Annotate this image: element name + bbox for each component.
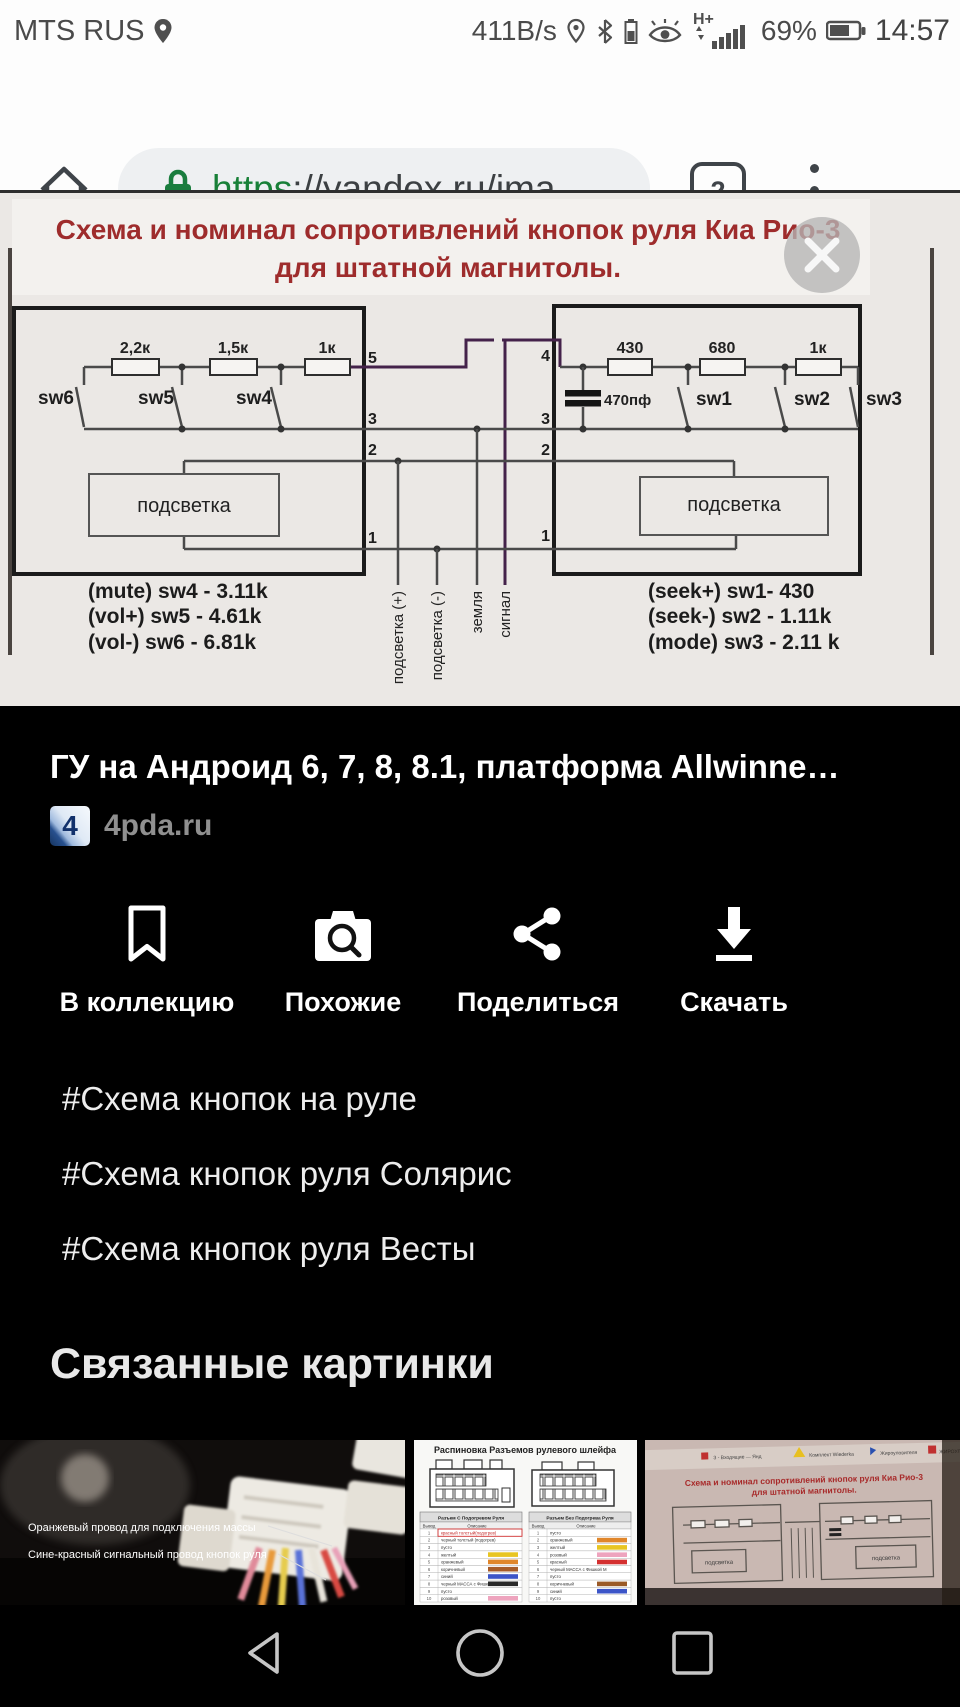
col-header: Описание (467, 1523, 487, 1528)
left-resistor-chain: 2,2к 1,5к 1к sw6 sw5 sw4 (38, 340, 350, 427)
status-bar: MTS RUS 411B/s (0, 0, 960, 62)
blurred-knob (61, 1454, 109, 1502)
phone-screen: MTS RUS 411B/s (0, 0, 960, 1707)
switch-label: sw3 (866, 389, 902, 410)
resistor-label: 1,5к (218, 340, 249, 357)
value-line: (mute) sw4 - 3.11k (88, 580, 268, 603)
table-header: Разъем Без Подогрева Руля (546, 1516, 614, 1522)
pin-label: 2 (368, 442, 377, 459)
svg-text:пусто: пусто (441, 1545, 452, 1550)
camera-search-icon (312, 903, 374, 965)
table-header: Разъем С Подогревом Руля (438, 1516, 504, 1522)
value-line: (vol+) sw5 - 4.61k (88, 605, 262, 628)
share-button[interactable]: Поделиться (443, 903, 633, 1018)
pin-label: 3 (541, 411, 550, 428)
backlight-label-left: подсветка (137, 495, 231, 517)
similar-images-button[interactable]: Похожие (248, 903, 438, 1018)
thumb1-label1: Оранжевый провод для подключения массы (28, 1522, 256, 1534)
svg-text:желтый: желтый (441, 1552, 457, 1557)
svg-text:пусто: пусто (441, 1589, 452, 1594)
wire-name-labels: подсветка (+) подсветка (-) земля сигнал (390, 591, 514, 684)
svg-text:оранжевый: оранжевый (441, 1560, 464, 1565)
strip-snippet: Комплект Wiederka (809, 1452, 854, 1459)
favicon-letter: 4 (62, 810, 78, 842)
backlight-label-right: подсветка (687, 494, 781, 516)
battery-icon (826, 19, 866, 43)
source-row[interactable]: 4 4pda.ru (50, 806, 212, 846)
svg-text:пусто: пусто (550, 1596, 561, 1601)
thumb1-label2: Сине-красный сигнальный провод кнопок ру… (28, 1549, 267, 1561)
eye-comfort-icon (647, 18, 683, 45)
svg-text:красный: красный (550, 1560, 567, 1565)
svg-text:Описание: Описание (576, 1523, 596, 1528)
svg-text:розовый: розовый (550, 1552, 567, 1557)
svg-text:желтый: желтый (550, 1545, 566, 1550)
related-thumb-schematic-photo[interactable]: З - Входящие — Янд Комплект Wiederka Жир… (645, 1440, 960, 1605)
signal-wire (350, 340, 560, 367)
strip-snippet: З - Входящие — Янд (713, 1454, 761, 1461)
resistor-label: 430 (617, 340, 644, 357)
col-header: Вывод (423, 1523, 436, 1528)
left-connector-box (14, 308, 364, 574)
wire-break-artifact (494, 332, 502, 348)
thumb2-title: Распиновка Разъемов рулевого шлейфа (434, 1445, 617, 1455)
value-line: (seek+) sw1- 430 (648, 580, 814, 603)
action-label: Скачать (680, 987, 788, 1018)
bt-battery-icon (624, 18, 638, 45)
svg-text:Вывод: Вывод (532, 1523, 545, 1528)
switch-label: sw4 (236, 388, 272, 409)
value-texts: (mute) sw4 - 3.11k (vol+) sw5 - 4.61k (v… (88, 580, 840, 654)
wire-label-ground: земля (469, 591, 486, 633)
carrier-label: MTS RUS (14, 15, 145, 48)
pinout-table-right: Разъем Без Подогрева Руля Вывод Описание… (529, 1512, 631, 1602)
battery-percent: 69% (761, 15, 817, 47)
hashtag-link[interactable]: #Схема кнопок на руле (62, 1080, 417, 1118)
value-line: (vol-) sw6 - 6.81k (88, 631, 256, 654)
strip-snippet: Жироуловителя (880, 1450, 917, 1457)
mini-backlight-label: подсветка (872, 1555, 901, 1562)
svg-text:коричневый: коричневый (441, 1567, 465, 1572)
nav-home-button[interactable] (454, 1627, 506, 1679)
resistor-label: 1к (810, 340, 828, 357)
svg-text:пусто: пусто (550, 1574, 561, 1579)
carrier-group: MTS RUS (14, 15, 173, 48)
clock: 14:57 (875, 14, 950, 48)
action-label: В коллекцию (60, 987, 235, 1018)
value-line: (mode) sw3 - 2.11 k (648, 631, 840, 654)
net-speed: 411B/s (472, 15, 557, 47)
svg-text:пусто: пусто (550, 1530, 561, 1535)
resistor-label: 2,2к (120, 340, 151, 357)
wire-label-signal: сигнал (497, 591, 514, 638)
capacitor-label: 470пф (604, 392, 651, 409)
site-favicon: 4 (50, 806, 90, 846)
pin-label: 3 (368, 411, 377, 428)
switch-label: sw5 (138, 388, 174, 409)
mini-backlight-label: подсветка (705, 1560, 734, 1567)
pinout-table-left: Разъем С Подогревом Руля Вывод Описание … (420, 1512, 522, 1602)
connector-diagram-a (430, 1460, 514, 1507)
resistor-label: 680 (709, 340, 736, 357)
action-label: Поделиться (457, 987, 619, 1018)
nav-back-button[interactable] (242, 1630, 288, 1676)
svg-text:розовый: розовый (441, 1596, 458, 1601)
related-thumb-wiring-photo[interactable]: Оранжевый провод для подключения массы С… (0, 1440, 405, 1605)
bluetooth-icon (595, 18, 615, 45)
location-icon (566, 18, 586, 44)
viewed-image-schematic[interactable]: Схема и номинал сопротивлений кнопок рул… (0, 193, 960, 706)
schematic-title-line2: для штатной магнитолы. (275, 252, 621, 283)
image-viewer: Схема и номинал сопротивлений кнопок рул… (0, 190, 960, 706)
related-thumb-pinout-doc[interactable]: Распиновка Разъемов рулевого шлейфа (414, 1440, 637, 1605)
action-label: Похожие (285, 987, 401, 1018)
svg-text:10: 10 (536, 1596, 541, 1601)
related-images-heading: Связанные картинки (50, 1340, 494, 1389)
pin-label: 2 (541, 442, 550, 459)
add-to-collection-button[interactable]: В коллекцию (52, 903, 242, 1018)
pin-label: 1 (541, 528, 550, 545)
hashtag-link[interactable]: #Схема кнопок руля Солярис (62, 1155, 512, 1193)
hashtag-link[interactable]: #Схема кнопок руля Весты (62, 1230, 475, 1268)
svg-text:красный толстый(подогрев): красный толстый(подогрев) (441, 1530, 497, 1535)
value-line: (seek-) sw2 - 1.11k (648, 605, 832, 628)
result-title: ГУ на Андроид 6, 7, 8, 8.1, платформа Al… (50, 748, 930, 786)
browser-toolbar: https://yandex.ru/ima 2 (0, 62, 960, 190)
download-icon (706, 903, 762, 965)
download-button[interactable]: Скачать (639, 903, 829, 1018)
nav-recents-button[interactable] (670, 1630, 716, 1676)
location-pin-filled-icon (153, 18, 173, 44)
schematic-title-line1: Схема и номинал сопротивлений кнопок рул… (56, 214, 841, 245)
wire-label-backlight-minus: подсветка (-) (429, 591, 446, 680)
svg-text:черный МАССА с Фишкой М: черный МАССА с Фишкой М (550, 1567, 607, 1572)
svg-text:синий: синий (441, 1574, 453, 1579)
pin-label: 1 (368, 530, 377, 547)
resistor-label: 1к (319, 340, 337, 357)
switch-label: sw6 (38, 388, 74, 409)
pin-label: 5 (368, 350, 377, 367)
svg-text:оранжевый: оранжевый (550, 1538, 573, 1543)
pin-label: 4 (541, 348, 550, 365)
bookmark-icon (119, 903, 175, 965)
signal-strength-icon: H+ (692, 9, 752, 53)
pin-numbers: 5 3 2 1 4 3 2 1 (368, 348, 550, 547)
svg-text:черный толстый (подогрев): черный толстый (подогрев) (441, 1538, 496, 1543)
svg-text:коричневый: коричневый (550, 1582, 574, 1587)
svg-text:10: 10 (427, 1596, 432, 1601)
switch-label: sw2 (794, 389, 830, 410)
svg-text:синий: синий (550, 1589, 562, 1594)
switch-label: sw1 (696, 389, 732, 410)
close-button[interactable] (784, 217, 860, 293)
right-resistor-chain: 430 680 1к sw1 sw2 sw3 (560, 340, 902, 427)
source-name: 4pda.ru (104, 809, 212, 843)
wire-label-backlight-plus: подсветка (+) (390, 591, 407, 684)
status-icons-group: 411B/s H+ (472, 0, 950, 62)
share-icon (509, 903, 567, 965)
network-type-label: H+ (693, 11, 714, 28)
